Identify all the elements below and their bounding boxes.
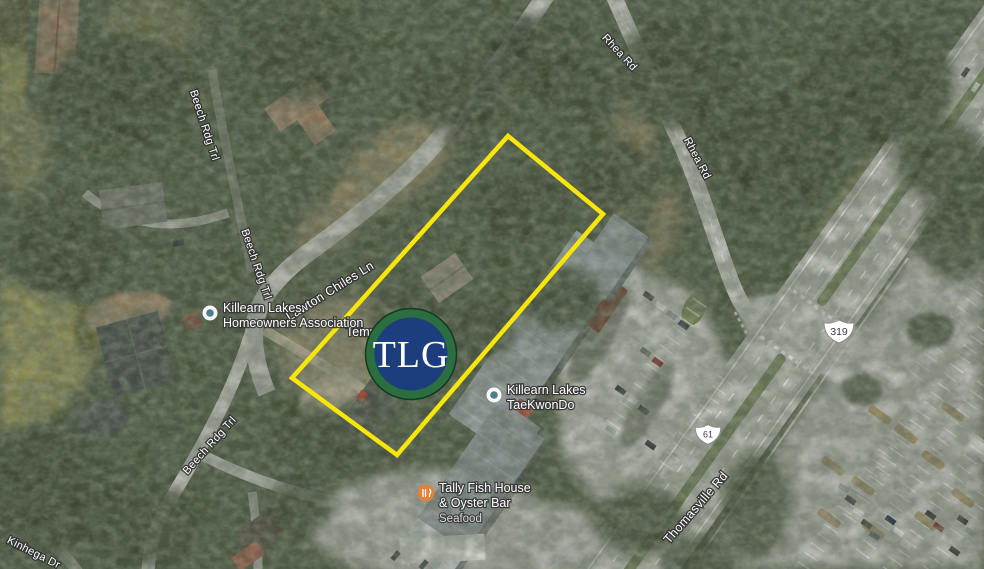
poi-label-line2[interactable]: & Oyster Bar (439, 496, 511, 510)
logo-text: TLG (373, 334, 450, 376)
poi-label-line1[interactable]: Tally Fish House (439, 481, 531, 495)
poi-pin-dot (206, 309, 214, 317)
route-shield-number: 61 (703, 429, 713, 439)
poi-category-label: Seafood (439, 513, 482, 525)
satellite-map-view[interactable]: Rhea Rd Rhea Rd Beech Rdg Trl Beech Rdg … (0, 0, 984, 569)
poi-label-line1[interactable]: Killearn Lakes (507, 383, 586, 397)
poi-label-line2[interactable]: Homeowners Association (223, 316, 363, 330)
poi-pin-dot (490, 391, 498, 399)
tlg-logo-badge: TLG (366, 309, 457, 400)
poi-label-line1[interactable]: Killearn Lakes (223, 301, 302, 315)
route-shield-number: 319 (830, 326, 848, 338)
satellite-map-canvas[interactable]: Rhea Rd Rhea Rd Beech Rdg Trl Beech Rdg … (0, 0, 984, 569)
poi-label-line2[interactable]: TaeKwonDo (507, 398, 574, 412)
